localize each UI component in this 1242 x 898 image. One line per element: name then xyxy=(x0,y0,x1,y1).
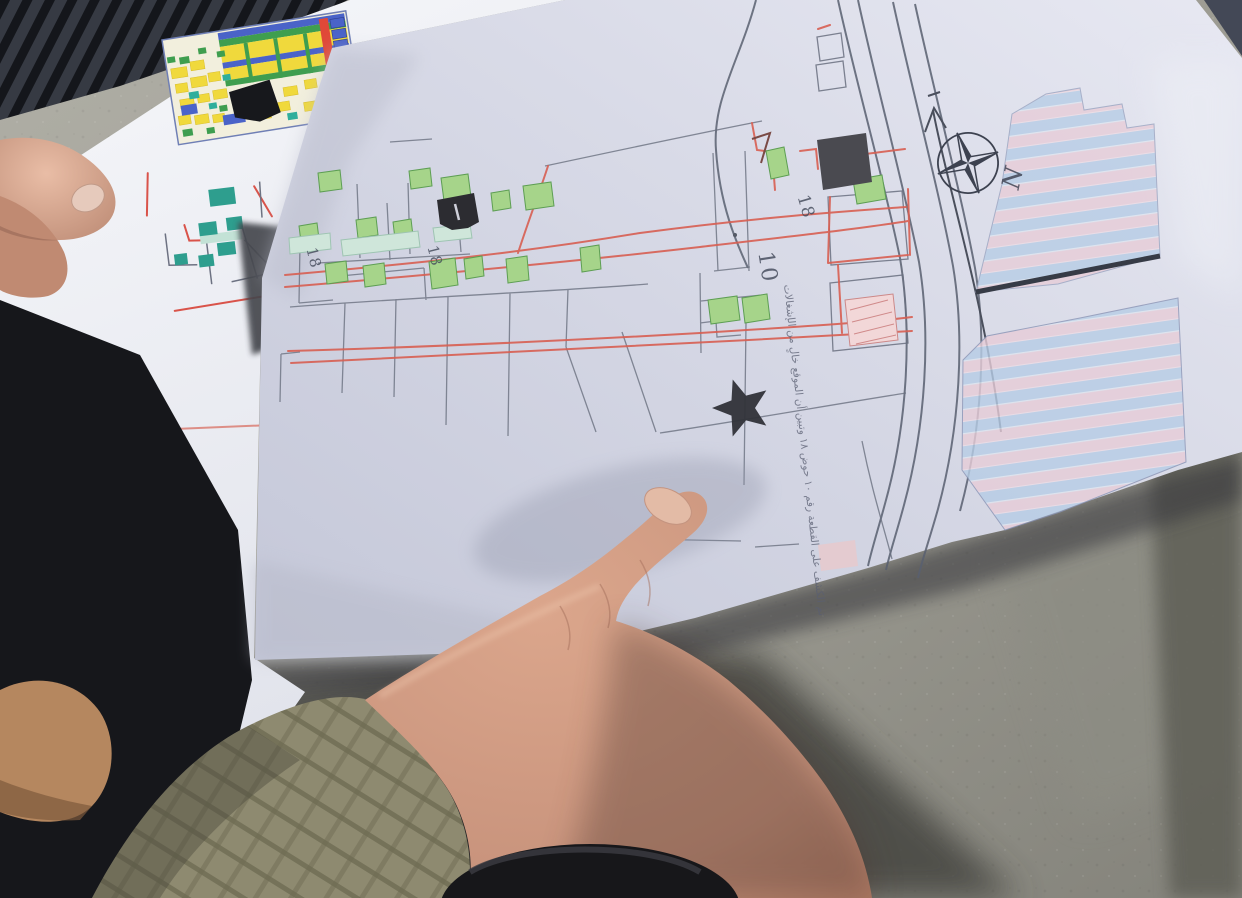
road-label-18-right: 18 xyxy=(794,193,817,220)
gray-building xyxy=(817,133,872,190)
pink-rect-lower xyxy=(818,540,858,571)
road-label-18-left: 18 xyxy=(303,246,323,270)
parcel-label-10: 10 xyxy=(753,250,780,285)
photo-scene: 18 18 18 10 N تم الكشف على القطعة رقم ١٠… xyxy=(0,0,1242,898)
road-label-18-mid: 18 xyxy=(424,244,444,268)
pink-hatched-building xyxy=(845,294,898,346)
photo-render xyxy=(0,0,1242,898)
